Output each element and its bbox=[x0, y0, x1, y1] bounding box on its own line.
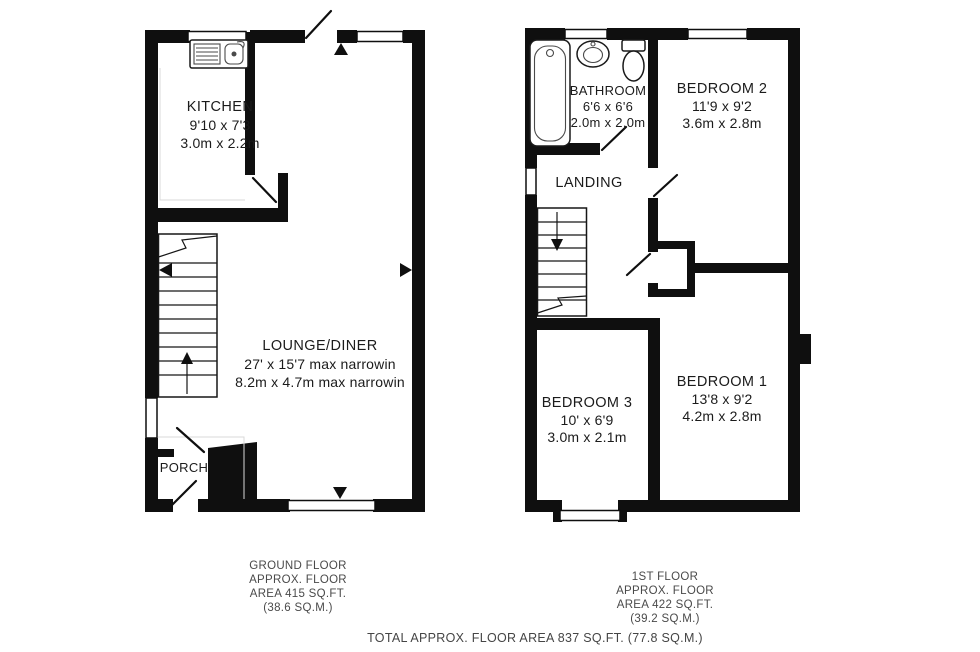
stairs-first-floor bbox=[538, 208, 587, 316]
bathroom-dims-imperial: 6'6 x 6'6 bbox=[583, 99, 633, 114]
porch-room-label: PORCH bbox=[160, 460, 208, 475]
bathroom-room-label: BATHROOM bbox=[570, 83, 647, 98]
front-door-swing bbox=[170, 481, 196, 507]
kitchen-door-swing bbox=[253, 178, 276, 202]
lounge-rear-window bbox=[357, 32, 403, 42]
first-floor-footer-line3: AREA 422 SQ.FT. bbox=[617, 599, 714, 611]
ground-floor-footer-line1: GROUND FLOOR bbox=[249, 560, 347, 572]
ground-floor-footer-line3: AREA 415 SQ.FT. bbox=[250, 588, 347, 600]
first-floor-plan: BATHROOM 6'6 x 6'6 2.0m x 2.0m BEDROOM 2… bbox=[525, 28, 811, 522]
hall-door-swing bbox=[177, 428, 204, 452]
bedroom1-dims-metric: 4.2m x 2.8m bbox=[682, 408, 761, 424]
lounge-room-label: LOUNGE/DINER bbox=[262, 338, 377, 354]
kitchen-room-label: KITCHEN bbox=[187, 99, 253, 115]
bathroom-dims-metric: 2.0m x 2.0m bbox=[571, 115, 646, 130]
bedroom2-door-swing bbox=[654, 175, 677, 196]
lounge-front-window bbox=[288, 501, 375, 511]
floorplan-svg: KITCHEN 9'10 x 7'3 3.0m x 2.2m LOUNGE/DI… bbox=[0, 0, 980, 652]
rear-opening-marker bbox=[334, 43, 348, 55]
bedroom2-window bbox=[688, 30, 747, 39]
ground-floor-plan: KITCHEN 9'10 x 7'3 3.0m x 2.2m LOUNGE/DI… bbox=[145, 11, 425, 512]
kitchen-dims-imperial: 9'10 x 7'3 bbox=[189, 117, 250, 133]
front-opening-marker bbox=[333, 487, 347, 499]
first-floor-doors bbox=[602, 127, 677, 275]
bedroom3-bay-window bbox=[560, 511, 620, 521]
bedroom2-room-label: BEDROOM 2 bbox=[677, 81, 768, 97]
right-chimney-bump bbox=[798, 334, 811, 364]
bedroom3-dims-imperial: 10' x 6'9 bbox=[560, 412, 613, 428]
bedroom1-dims-imperial: 13'8 x 9'2 bbox=[691, 391, 752, 407]
landing-window bbox=[526, 168, 536, 195]
floorplan-image: KITCHEN 9'10 x 7'3 3.0m x 2.2m LOUNGE/DI… bbox=[0, 0, 980, 652]
bedroom1-room-label: BEDROOM 1 bbox=[677, 374, 768, 390]
stairs-ground-floor bbox=[159, 234, 218, 397]
bathroom-door-swing bbox=[602, 127, 626, 150]
ground-floor-footer-line4: (38.6 SQ.M.) bbox=[263, 602, 332, 614]
chimney-breast bbox=[208, 442, 257, 512]
rear-door-swing bbox=[306, 11, 331, 38]
first-floor-footer-line4: (39.2 SQ.M.) bbox=[630, 613, 699, 625]
ground-floor-footer-line2: APPROX. FLOOR bbox=[249, 574, 347, 586]
kitchen-dims-metric: 3.0m x 2.2m bbox=[180, 135, 259, 151]
side-opening-marker bbox=[400, 263, 412, 277]
side-window bbox=[146, 398, 157, 438]
bedroom3-dims-metric: 3.0m x 2.1m bbox=[547, 429, 626, 445]
basin-icon bbox=[577, 41, 609, 67]
kitchen-sink-icon bbox=[190, 40, 248, 68]
lounge-dims-imperial: 27' x 15'7 max narrowin bbox=[244, 356, 396, 372]
toilet-icon bbox=[622, 40, 645, 81]
footer: GROUND FLOOR APPROX. FLOOR AREA 415 SQ.F… bbox=[249, 560, 714, 645]
total-area-line: TOTAL APPROX. FLOOR AREA 837 SQ.FT. (77.… bbox=[367, 631, 703, 645]
lounge-dims-metric: 8.2m x 4.7m max narrowin bbox=[235, 374, 405, 390]
bathroom-window bbox=[565, 30, 607, 39]
first-floor-footer-line2: APPROX. FLOOR bbox=[616, 585, 714, 597]
bedroom2-dims-imperial: 11'9 x 9'2 bbox=[692, 98, 752, 114]
bedroom1-door-swing bbox=[627, 254, 650, 275]
bathtub-icon bbox=[530, 40, 570, 146]
bedroom2-dims-metric: 3.6m x 2.8m bbox=[682, 115, 761, 131]
first-floor-footer-line1: 1ST FLOOR bbox=[632, 571, 698, 583]
landing-room-label: LANDING bbox=[555, 175, 622, 191]
bedroom3-room-label: BEDROOM 3 bbox=[542, 395, 633, 411]
kitchen-counter-outline bbox=[160, 68, 245, 200]
